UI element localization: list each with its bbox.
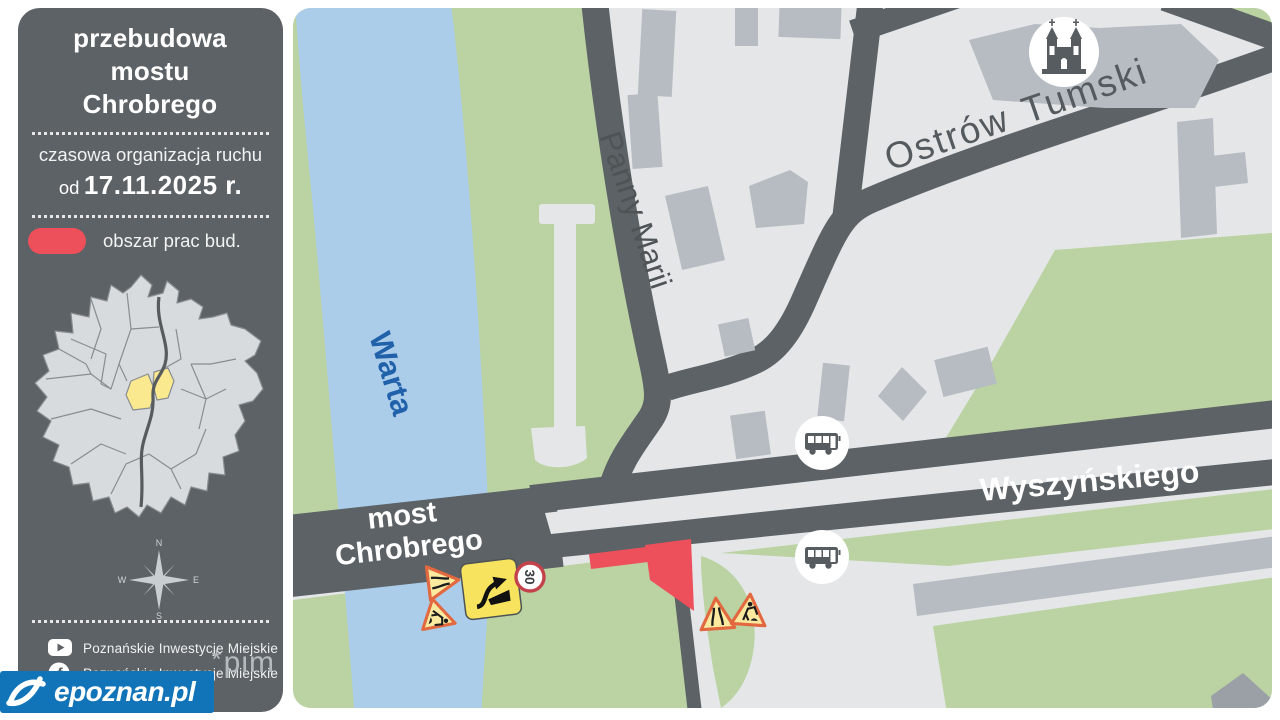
- dotted-divider: [32, 620, 269, 623]
- traffic-map: Warta most Chrobrego Panny Marii Wyszyńs…: [293, 8, 1272, 708]
- effective-date: od 17.11.2025 r.: [18, 170, 283, 201]
- subtitle: czasowa organizacja ruchu: [18, 144, 283, 166]
- compass-w: W: [118, 575, 127, 585]
- legend: obszar prac bud.: [28, 228, 241, 254]
- lane-shift-sign-icon: [460, 558, 522, 620]
- city-districts-map: [31, 260, 271, 528]
- page: przebudowa mostu Chrobrego czasowa organ…: [0, 0, 1280, 720]
- date-prefix: od: [59, 177, 80, 198]
- compass-n: N: [156, 538, 163, 548]
- compass-s: S: [156, 611, 162, 620]
- epoznan-text: epoznan.pl: [54, 676, 195, 708]
- pim-logo: *pim: [212, 644, 275, 680]
- epoznan-glyph-icon: [0, 672, 52, 712]
- cathedral-icon: [1029, 17, 1099, 87]
- dotted-divider: [32, 132, 269, 135]
- speed-limit-value: 30: [522, 569, 537, 584]
- work-area-swatch: [28, 228, 86, 254]
- epoznan-logo[interactable]: epoznan.pl: [0, 671, 214, 713]
- compass-e: E: [193, 575, 199, 585]
- date-value: 17.11.2025 r.: [84, 170, 242, 200]
- speed-limit-sign: 30: [516, 563, 544, 591]
- page-title: przebudowa mostu Chrobrego: [50, 22, 250, 121]
- bus-stop-icon-north: [795, 416, 849, 470]
- info-panel: przebudowa mostu Chrobrego czasowa organ…: [18, 8, 283, 712]
- youtube-icon: [48, 639, 72, 657]
- map-canvas: Warta most Chrobrego Panny Marii Wyszyńs…: [293, 8, 1272, 708]
- legend-label: obszar prac bud.: [103, 230, 241, 252]
- dotted-divider: [32, 215, 269, 218]
- bus-stop-icon-south: [795, 530, 849, 584]
- compass-rose: N E S W: [117, 536, 201, 620]
